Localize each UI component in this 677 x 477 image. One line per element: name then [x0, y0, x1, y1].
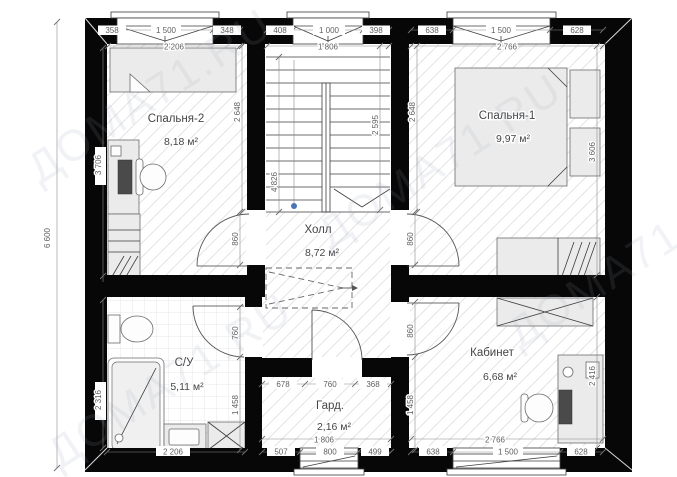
- dim-bottom-office-1: 638: [426, 448, 440, 457]
- nightstand-top: [570, 70, 600, 118]
- dim-bottom-office-total: 2 766: [485, 436, 506, 445]
- wall-wardrobe-left: [245, 358, 312, 377]
- toilet-bowl: [121, 316, 153, 342]
- stair-start-dot: [291, 203, 297, 209]
- dim-top-b2-1: 358: [105, 26, 119, 35]
- dresser: [108, 214, 140, 284]
- stair-treads-upper: [266, 57, 390, 83]
- wall-middle-left: [107, 275, 265, 297]
- dim-bedroom1-right: 3 606: [588, 141, 597, 162]
- toilet-tank: [108, 315, 120, 343]
- dim-top-b1-2: 1 500: [491, 26, 512, 35]
- dim-stairs-right: 2 595: [371, 114, 380, 135]
- dim-top-b1-3: 628: [570, 26, 584, 35]
- dim-top-b2-2: 1 500: [156, 26, 177, 35]
- dim-bedroom1-left: 2 648: [408, 101, 417, 122]
- dim-ward-top-1: 678: [276, 380, 290, 389]
- room-label-wardrobe: Гард.: [316, 400, 344, 412]
- room-area-wardrobe: 2,16 м²: [317, 421, 352, 433]
- desk-lamp: [563, 367, 573, 377]
- dim-bottom-office-3: 628: [574, 448, 588, 457]
- dim-bottom-ward-2: 800: [323, 448, 337, 457]
- chair-seat: [140, 164, 166, 190]
- dim-overall-left: 6 600: [43, 227, 52, 248]
- dim-stairs-left: 4 826: [270, 171, 279, 192]
- wall-wardrobe-right: [362, 358, 409, 377]
- dim-top-b1-1: 638: [425, 26, 439, 35]
- dim-bottom-ward-1: 507: [274, 448, 288, 457]
- room-area-office: 6,68 м²: [483, 371, 518, 383]
- dim-bottom-office-2: 1 500: [498, 448, 519, 457]
- dim-bottom-ward-total: 1 806: [314, 436, 335, 445]
- dim-top-st-3: 398: [369, 26, 383, 35]
- dim-bathroom-bottom: 2 206: [163, 448, 184, 457]
- room-label-office: Кабинет: [470, 347, 514, 359]
- floor-plan-page: 358 1 500 348 2 206 408 1 000 398 1 806 …: [0, 0, 677, 477]
- room-area-bedroom2: 8,18 м²: [164, 136, 199, 148]
- wall-office-top-block: [391, 297, 409, 302]
- dim-ward-top-2: 760: [323, 380, 337, 389]
- office-monitor: [559, 390, 572, 424]
- dim-door-bedroom1: 860: [406, 232, 415, 246]
- dim-top-st-total: 1 806: [318, 43, 339, 52]
- wall-bedroom2-stairs: [247, 44, 265, 212]
- dim-top-st-2: 1 000: [319, 26, 340, 35]
- dim-bedroom2-right: 2 648: [233, 101, 242, 122]
- dim-door-office: 860: [406, 324, 415, 338]
- door-opening-wardrobe: [312, 357, 362, 378]
- floor-plan-canvas: 358 1 500 348 2 206 408 1 000 398 1 806 …: [0, 0, 677, 477]
- dim-office-right: 2 416: [588, 365, 597, 386]
- dim-lower-wall-right: 1 458: [406, 394, 415, 415]
- dim-lower-wall-left: 1 458: [231, 394, 240, 415]
- office-chair-seat: [525, 394, 553, 422]
- sink-basin: [169, 429, 199, 445]
- dim-bottom-ward-3: 499: [368, 448, 382, 457]
- dim-door-bedroom2: 860: [231, 232, 240, 246]
- desk-monitor: [118, 160, 132, 194]
- dim-ward-top-3: 368: [366, 380, 380, 389]
- dim-top-b1-total: 2 766: [497, 43, 518, 52]
- door-opening-bedroom2: [246, 210, 266, 265]
